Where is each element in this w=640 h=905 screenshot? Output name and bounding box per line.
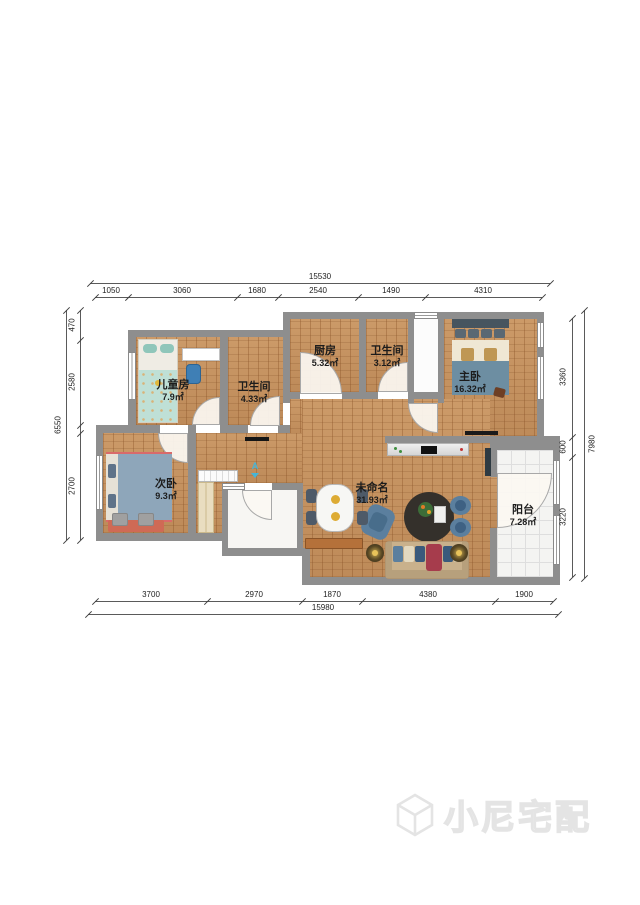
dim-line-bottom-chain	[95, 601, 553, 602]
dim-tick	[77, 537, 84, 544]
wall	[220, 425, 248, 433]
wall	[96, 425, 160, 433]
master-bed-cushion	[484, 348, 497, 361]
second-bed-pillow	[108, 464, 116, 478]
second-chair	[138, 513, 154, 526]
dim-line-left-total	[66, 310, 67, 540]
window	[537, 356, 544, 400]
armchair-seat	[367, 510, 389, 533]
master-bed-pillow	[468, 329, 479, 338]
dim-line-top-total	[90, 283, 550, 284]
dim-tick	[550, 598, 557, 605]
cube-logo-icon	[394, 792, 436, 838]
room-area: 7.9㎡	[157, 392, 190, 404]
room-label-bath1: 卫生间 4.33㎡	[238, 380, 271, 406]
children-bed-pillow	[160, 344, 174, 353]
shoe-cabinet	[198, 470, 238, 482]
dining-table	[316, 484, 354, 532]
console-item	[394, 447, 397, 450]
master-nook-floor	[414, 319, 438, 392]
dim-label: 2540	[309, 286, 327, 295]
master-radiator	[465, 431, 498, 435]
room-name: 阳台	[510, 503, 537, 517]
window	[553, 460, 560, 505]
ac-unit	[485, 448, 491, 476]
barrel-chair-seat	[455, 522, 466, 533]
room-label-children: 儿童房 7.9㎡	[157, 378, 190, 404]
dim-tick	[547, 280, 554, 287]
watermark-brand: 小尼宅配	[444, 790, 592, 839]
dining-plate	[331, 495, 340, 504]
room-name: 儿童房	[157, 378, 190, 392]
dim-label: 4380	[419, 590, 437, 599]
barrel-chair-seat	[455, 500, 466, 511]
wall	[408, 312, 414, 403]
sofa-blanket	[426, 544, 442, 571]
console-item	[399, 450, 402, 453]
master-bed-pillow	[455, 329, 466, 338]
room-area: 3.12㎡	[371, 358, 404, 370]
room-label-kitchen: 厨房 5.32㎡	[312, 344, 339, 370]
dim-tick	[581, 575, 588, 582]
room-label-second: 次卧 9.3㎡	[155, 477, 177, 503]
wall	[128, 330, 290, 337]
dim-label: 4310	[474, 286, 492, 295]
master-bed-pillow	[481, 329, 492, 338]
room-name: 未命名	[356, 481, 389, 495]
dining-chair	[357, 511, 368, 525]
room-name: 主卧	[454, 370, 486, 384]
radiator	[245, 437, 269, 441]
wall	[408, 392, 444, 399]
dim-label: 15530	[309, 272, 331, 281]
barrel-chair	[450, 496, 471, 515]
sofa-back	[386, 570, 468, 578]
sideboard	[305, 538, 363, 549]
dim-label: 3060	[173, 286, 191, 295]
wall	[490, 443, 560, 450]
dim-label: 3360	[559, 368, 568, 386]
second-bed-pillow	[108, 494, 116, 508]
wall	[359, 312, 366, 398]
room-label-balcony: 阳台 7.28㎡	[510, 503, 537, 529]
dim-tick	[555, 611, 562, 618]
dim-label: 2580	[68, 373, 77, 391]
dim-line-top-chain	[95, 297, 542, 298]
marker-arrow-icon	[251, 473, 259, 478]
window	[96, 455, 103, 510]
room-area: 9.3㎡	[155, 491, 177, 503]
wall	[96, 533, 228, 541]
room-name: 次卧	[155, 477, 177, 491]
plant-flower	[421, 505, 425, 509]
master-bed-pillow	[494, 329, 505, 338]
dim-line-right-total	[584, 310, 585, 578]
wall	[188, 425, 196, 541]
marker-label: A	[252, 461, 259, 471]
room-name: 卫生间	[238, 380, 271, 394]
sofa-pillow	[393, 546, 403, 562]
dim-label: 470	[68, 318, 77, 331]
room-area: 4.33㎡	[238, 394, 271, 406]
dim-label: 15980	[312, 603, 334, 612]
coffee-table-tray	[434, 506, 446, 523]
wall	[438, 312, 444, 403]
wall	[385, 436, 560, 443]
dim-label: 1870	[323, 590, 341, 599]
children-desk	[182, 348, 220, 361]
room-area: 5.32㎡	[312, 358, 339, 370]
wall	[342, 392, 378, 399]
tv-screen	[421, 446, 437, 454]
room-name: 厨房	[312, 344, 339, 358]
marker-icon: A	[248, 462, 262, 478]
wall	[283, 312, 290, 403]
coffee-table-plant	[418, 502, 433, 517]
dim-label: 2700	[68, 477, 77, 495]
dim-label: 3220	[559, 508, 568, 526]
wall	[278, 425, 290, 433]
room-name: 卫生间	[371, 344, 404, 358]
plant-flower	[427, 510, 431, 514]
window	[537, 322, 544, 348]
wall	[283, 392, 300, 399]
dim-label: 6550	[54, 416, 63, 434]
console-item	[460, 448, 463, 451]
floor-lamp-light	[456, 550, 462, 556]
tv-console	[387, 443, 469, 456]
wardrobe	[198, 482, 214, 533]
window	[414, 312, 438, 319]
living-rug	[404, 492, 454, 542]
dim-line-bottom-total	[88, 614, 558, 615]
window	[128, 352, 136, 400]
floor-lamp	[366, 544, 384, 562]
dim-tick	[569, 574, 576, 581]
room-area: 31.93㎡	[356, 495, 389, 507]
room-label-living: 未命名 31.93㎡	[356, 481, 389, 507]
dim-tick	[63, 537, 70, 544]
floor-lamp-light	[372, 550, 378, 556]
dim-tick	[539, 294, 546, 301]
sofa-pillow	[404, 546, 414, 562]
wall	[297, 483, 303, 556]
dim-line-right-chain	[572, 318, 573, 577]
dim-label: 7980	[588, 435, 597, 453]
wall	[220, 337, 228, 425]
wall	[222, 548, 310, 556]
children-bed-pillow	[143, 344, 157, 353]
room-area: 16.32㎡	[454, 384, 486, 396]
dim-label: 2970	[245, 590, 263, 599]
floor-lamp	[450, 544, 468, 562]
dim-label: 1490	[382, 286, 400, 295]
dim-label: 600	[559, 440, 568, 453]
watermark: 小尼宅配	[394, 790, 592, 839]
second-chair	[112, 513, 128, 526]
room-area: 7.28㎡	[510, 517, 537, 529]
room-label-bath2: 卫生间 3.12㎡	[371, 344, 404, 370]
sofa-pillow	[415, 546, 425, 562]
master-bed-headboard	[452, 319, 509, 328]
dim-label: 1050	[102, 286, 120, 295]
wall	[222, 483, 228, 556]
barrel-chair	[450, 518, 471, 537]
room-label-master: 主卧 16.32㎡	[454, 370, 486, 396]
wall	[490, 528, 497, 585]
dim-label: 1680	[248, 286, 266, 295]
master-bed-cushion	[461, 348, 474, 361]
balcony-threshold	[490, 477, 497, 528]
dim-label: 1900	[515, 590, 533, 599]
dining-plate	[331, 512, 340, 521]
dim-label: 3700	[142, 590, 160, 599]
window	[222, 483, 245, 490]
floorplan-page: A	[0, 0, 640, 905]
wall	[490, 443, 497, 477]
